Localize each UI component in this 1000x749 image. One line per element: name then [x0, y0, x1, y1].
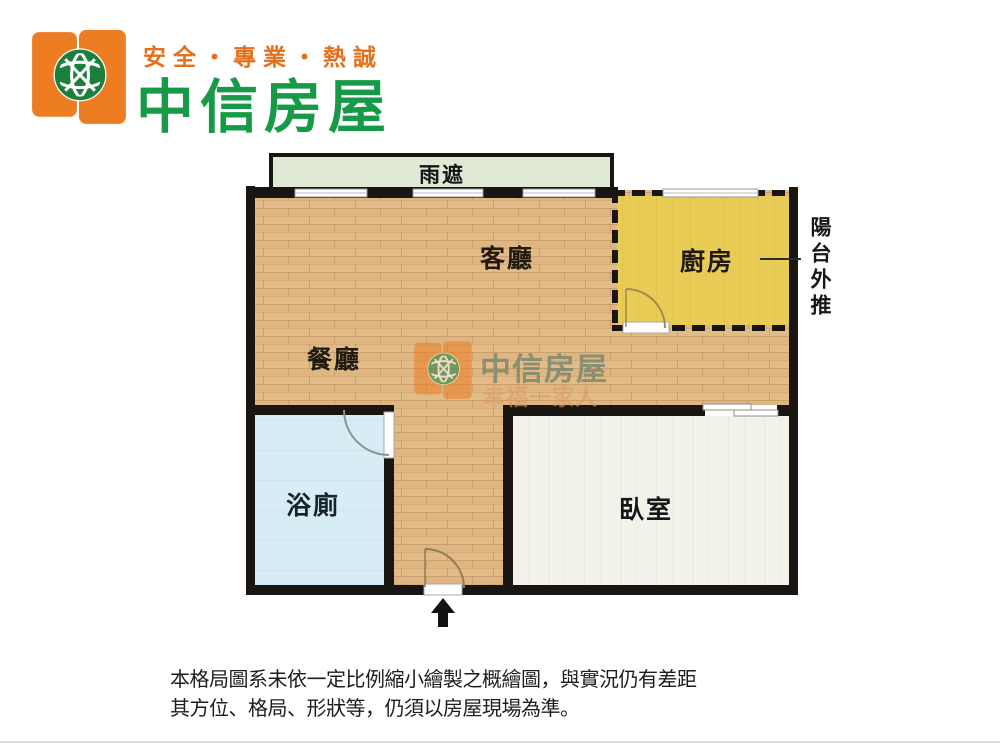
label-kitchen: 廚房 — [680, 242, 734, 278]
label-living-room: 客廳 — [480, 239, 534, 275]
label-bedroom: 臥室 — [619, 490, 673, 526]
label-dining-room: 餐廳 — [307, 340, 361, 376]
label-balcony-pushed-out: 陽台外推 — [804, 216, 834, 320]
kitchen-window — [663, 189, 758, 197]
label-canopy: 雨遮 — [419, 159, 465, 189]
disclaimer-text: 本格局圖系未依一定比例縮小繪製之概繪圖，與實況仍有差距 其方位、格局、形狀等，仍… — [170, 666, 697, 724]
watermark-tagline: 幸福一家人 — [483, 380, 598, 412]
entrance-arrow-icon — [431, 598, 455, 627]
page: 安全・專業・熱誠 中信房屋 — [0, 0, 1000, 749]
watermark-logo-icon — [413, 338, 473, 406]
disclaimer-line-1: 本格局圖系未依一定比例縮小繪製之概繪圖，與實況仍有差距 — [170, 666, 697, 695]
label-bathroom: 浴廁 — [286, 486, 340, 522]
bedroom-sliding-door — [703, 404, 778, 416]
bottom-divider — [0, 741, 1000, 743]
disclaimer-line-2: 其方位、格局、形狀等，仍須以房屋現場為準。 — [170, 695, 697, 724]
living-room-windows — [295, 189, 595, 197]
